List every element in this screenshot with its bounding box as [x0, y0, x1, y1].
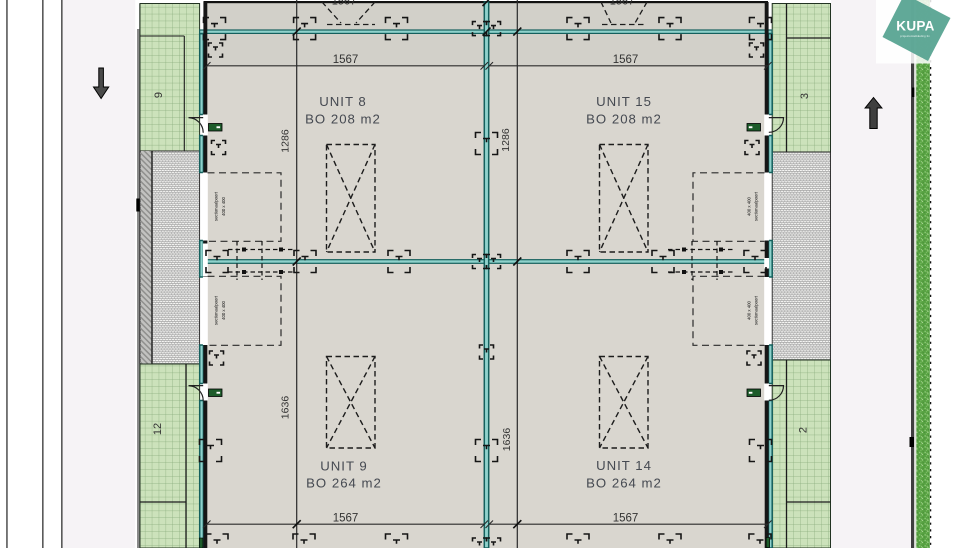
svg-text:1636: 1636 [501, 428, 513, 452]
svg-text:1567: 1567 [613, 54, 639, 66]
svg-text:KUPA: KUPA [896, 19, 934, 34]
svg-text:BO 264 m2: BO 264 m2 [586, 476, 662, 491]
svg-text:BO 208 m2: BO 208 m2 [305, 112, 381, 127]
svg-text:12: 12 [152, 423, 164, 435]
svg-text:400 x 400: 400 x 400 [221, 300, 226, 319]
svg-text:1567: 1567 [610, 0, 634, 8]
svg-text:UNIT 14: UNIT 14 [596, 458, 652, 473]
svg-text:3: 3 [799, 93, 811, 99]
svg-text:1286: 1286 [280, 129, 292, 153]
svg-text:sectionaalpoort: sectionaalpoort [214, 191, 219, 221]
svg-text:1567: 1567 [333, 512, 359, 524]
svg-text:sectionaalpoort: sectionaalpoort [214, 295, 219, 325]
svg-text:1636: 1636 [280, 396, 292, 420]
svg-text:UNIT 15: UNIT 15 [596, 94, 652, 109]
svg-text:9: 9 [153, 92, 165, 98]
svg-text:1567: 1567 [613, 512, 639, 524]
svg-text:sectionaalpoort: sectionaalpoort [754, 295, 759, 325]
svg-text:1567: 1567 [332, 0, 356, 8]
svg-text:projectontwikkeling bv: projectontwikkeling bv [900, 34, 930, 38]
svg-text:sectionaalpoort: sectionaalpoort [754, 191, 759, 221]
svg-text:UNIT 9: UNIT 9 [320, 459, 368, 474]
svg-text:2: 2 [798, 427, 810, 433]
svg-text:400 x 400: 400 x 400 [221, 196, 226, 215]
svg-text:1567: 1567 [333, 54, 359, 66]
svg-text:1286: 1286 [500, 128, 512, 152]
svg-text:BO 208 m2: BO 208 m2 [586, 112, 662, 127]
svg-text:UNIT 8: UNIT 8 [319, 94, 367, 109]
svg-text:400 x 400: 400 x 400 [747, 300, 752, 319]
svg-text:400 x 400: 400 x 400 [747, 196, 752, 215]
svg-text:BO 264 m2: BO 264 m2 [306, 476, 382, 491]
